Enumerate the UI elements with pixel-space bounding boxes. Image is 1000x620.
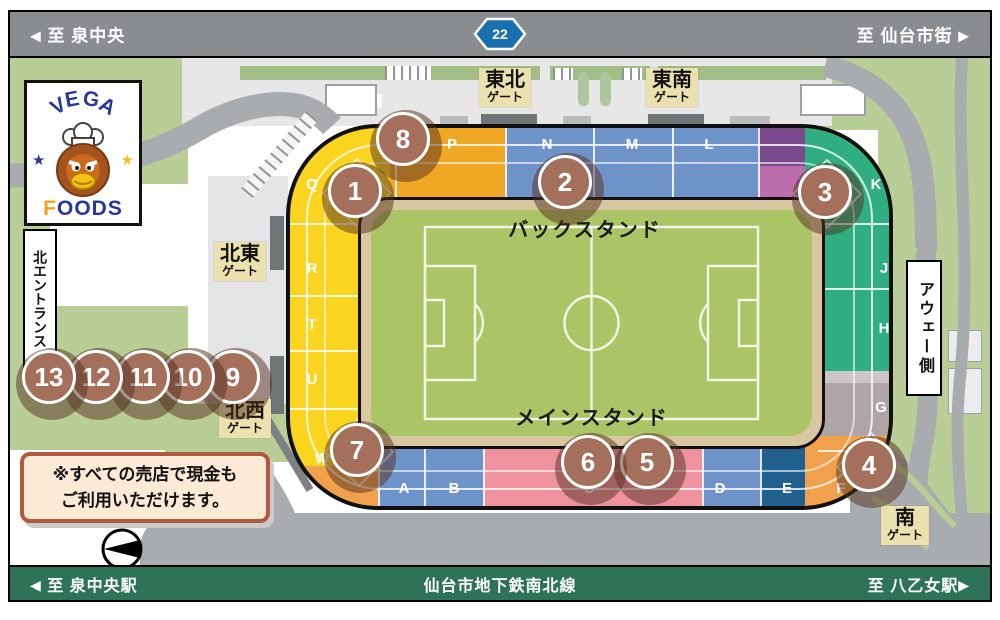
section-letter-M: M [622, 136, 642, 153]
gate-label-1: 東北ゲート [479, 68, 531, 107]
stall-marker-number: 7 [330, 423, 384, 477]
section-letter-E: E [777, 480, 797, 497]
subway-bar: ◀ 至 泉中央駅 仙台市地下鉄南北線 至 八乙女駅▶ [10, 565, 990, 600]
section-divider [758, 128, 760, 199]
subway-line-label: 仙台市地下鉄南北線 [423, 572, 576, 596]
left-arrow-icon: ◀ [30, 28, 42, 44]
away-side-label: アウェー側 [906, 260, 942, 396]
gate-suffix: ゲート [652, 91, 692, 104]
svg-text:22: 22 [492, 26, 508, 42]
section-letter-G: G [871, 399, 891, 416]
right-arrow-icon: ▶ [958, 28, 970, 44]
gate-suffix: ゲート [220, 265, 260, 278]
section-letter-N: N [537, 136, 557, 153]
map-frame: ◀ 至 泉中央 22 至 仙台市街 ▶ VEGA ★ ★ [8, 10, 992, 602]
gate-label-5: 南ゲート [881, 506, 929, 545]
gate-suffix: ゲート [887, 529, 923, 542]
stall-marker-number: 2 [538, 155, 592, 209]
section-letter-R: R [302, 260, 322, 277]
logo-letter: O [57, 197, 74, 220]
right-arrow-icon: ▶ [958, 577, 970, 593]
logo-letter: F [43, 197, 57, 220]
gate-name: 東北 [485, 70, 525, 91]
logo-text-vega: VEGA [27, 83, 139, 121]
stall-marker-number: 8 [376, 112, 430, 166]
gate-name: 北東 [220, 244, 260, 265]
station-label-left: ◀ 至 泉中央駅 [30, 572, 138, 596]
section-letter-T: T [302, 316, 322, 333]
section-divider [505, 128, 507, 199]
left-arrow-icon: ◀ [30, 577, 42, 593]
section-divider [290, 350, 358, 352]
section-letter-J: J [874, 260, 893, 277]
vega-foods-logo: VEGA ★ ★ FOODS [24, 80, 142, 226]
section-letter-A: A [394, 480, 414, 497]
section-divider [818, 288, 889, 290]
stall-marker-number: 3 [798, 165, 852, 219]
cash-notice-box: ※すべての売店で現金も ご利用いただけます。 [20, 452, 270, 523]
gate-suffix: ゲート [225, 422, 265, 435]
section-letter-U: U [302, 371, 322, 388]
site-map: VEGA ★ ★ FOODS [10, 58, 990, 565]
section-letter-D: D [710, 480, 730, 497]
direction-label-right: 至 仙台市街 ▶ [857, 22, 970, 47]
section-divider [672, 128, 674, 199]
stall-marker-number: 13 [22, 350, 76, 404]
section-letter-L: L [699, 136, 719, 153]
stall-marker-number: 6 [561, 435, 615, 489]
logo-letter: S [108, 197, 123, 220]
logo-text-foods: FOODS [27, 197, 139, 221]
gate-name: 南 [887, 508, 923, 529]
compass-icon [100, 527, 144, 565]
section-letter-P: P [442, 136, 462, 153]
gate-label-2: 東南ゲート [646, 68, 698, 107]
gate-label-3: 北東ゲート [214, 242, 266, 281]
section-divider [424, 447, 426, 506]
section-divider [290, 295, 358, 297]
section-divider [290, 408, 358, 410]
route-22-sign: 22 [472, 15, 528, 53]
main-stand-label: メインスタンド [515, 402, 669, 431]
section-divider [483, 447, 485, 506]
logo-letter: O [74, 197, 91, 220]
notice-line-1: ※すべての売店で現金も [26, 462, 264, 488]
top-road-bar: ◀ 至 泉中央 22 至 仙台市街 ▶ [10, 12, 990, 58]
station-label-right: 至 八乙女駅▶ [868, 572, 970, 596]
gate-suffix: ゲート [485, 91, 525, 104]
stall-marker-number: 1 [328, 164, 382, 218]
logo-letter: E [63, 87, 81, 113]
section-letter-Q: Q [302, 176, 322, 193]
notice-line-2: ご利用いただけます。 [26, 488, 264, 514]
logo-letter: D [92, 197, 108, 220]
stall-marker-number: 4 [842, 438, 896, 492]
section-divider [760, 447, 762, 506]
yellow-star-icon: ★ [121, 151, 134, 169]
section-letter-K: K [866, 176, 886, 193]
stall-marker-number: 5 [620, 435, 674, 489]
section-letter-H: H [874, 320, 893, 337]
section-letter-B: B [444, 480, 464, 497]
mascot-eagle-chef: ★ ★ [27, 121, 139, 199]
direction-label-left: ◀ 至 泉中央 [30, 22, 125, 47]
blue-star-icon: ★ [32, 151, 45, 169]
gate-name: 東南 [652, 70, 692, 91]
section-divider [702, 447, 704, 506]
